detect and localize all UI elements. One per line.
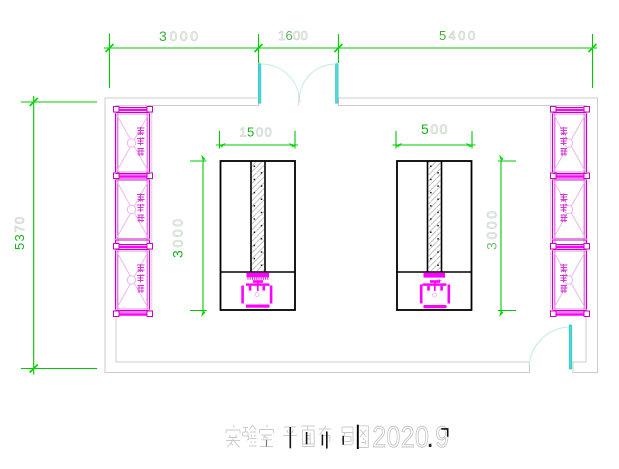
svg-text:400: 400 xyxy=(449,28,478,43)
svg-text:000: 000 xyxy=(170,28,201,44)
svg-text:6: 6 xyxy=(286,28,293,43)
svg-text:1: 1 xyxy=(278,28,285,43)
svg-text:3: 3 xyxy=(159,28,167,44)
svg-text:3: 3 xyxy=(170,250,186,258)
svg-text:3: 3 xyxy=(484,242,500,250)
svg-text:53: 53 xyxy=(12,233,27,250)
svg-text:00: 00 xyxy=(431,121,449,137)
svg-text:1: 1 xyxy=(240,125,247,140)
svg-text:000: 000 xyxy=(484,208,500,239)
svg-text:00: 00 xyxy=(293,28,308,43)
svg-text:5: 5 xyxy=(247,125,254,140)
svg-text:70: 70 xyxy=(12,215,27,232)
svg-text:00: 00 xyxy=(256,125,273,140)
svg-text:5: 5 xyxy=(421,121,429,137)
svg-text:5: 5 xyxy=(439,28,446,43)
svg-text:9: 9 xyxy=(435,420,449,454)
svg-text:2020: 2020 xyxy=(372,420,429,454)
svg-text:000: 000 xyxy=(170,216,186,247)
